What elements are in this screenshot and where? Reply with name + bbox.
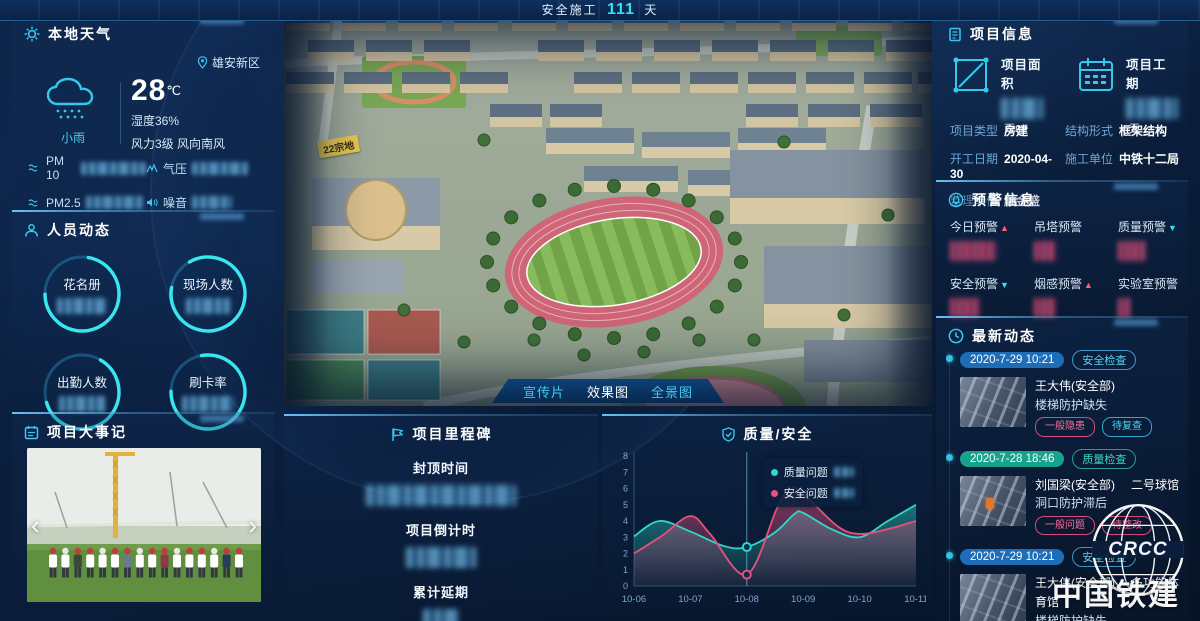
- entry-time-badge: 2020-7-29 10:21: [960, 352, 1064, 368]
- group-photo: [27, 448, 261, 602]
- blurred-value: [1126, 98, 1178, 119]
- blurred-value: [1001, 98, 1043, 119]
- svg-text:10-10: 10-10: [847, 594, 871, 605]
- pressure-icon: [146, 163, 158, 173]
- entry-type-tag: 安全检查: [1072, 350, 1136, 370]
- entry-issue: 楼梯防护缺失: [1035, 612, 1184, 621]
- svg-text:0: 0: [623, 581, 628, 591]
- pm-waves-icon: [28, 163, 41, 173]
- project-info-title: 项目信息: [970, 24, 1034, 44]
- entry-time-badge: 2020-7-29 10:21: [960, 549, 1064, 565]
- dashboard: 22宗地 宣传片 效果图 全景图 安全施工 111 天 本地天气: [0, 0, 1200, 621]
- site-render: [284, 10, 932, 406]
- svg-text:4: 4: [623, 516, 628, 526]
- events-panel: 项目大事记 ‹ ›: [12, 412, 274, 613]
- svg-text:7: 7: [623, 467, 628, 477]
- weather-current: 小雨 28℃ 湿度36% 风力3级 风向南风: [30, 76, 225, 152]
- entry-person: 刘国梁(安全部): [1035, 478, 1115, 492]
- temperature: 28℃: [131, 76, 225, 106]
- calendar-icon: [1075, 54, 1117, 96]
- site-3d-view[interactable]: 22宗地 宣传片 效果图 全景图: [284, 10, 932, 406]
- document-icon: [948, 27, 962, 42]
- feed-entry[interactable]: 2020-7-29 10:21 安全检查 王大伟(安全部)多功能体育馆 楼梯防护…: [946, 547, 1184, 621]
- svg-text:5: 5: [623, 500, 628, 510]
- project-info-panel: 项目信息 项目面积 万m² 项目工期 天 项目类型房建 结构形式框架结构 开工日: [936, 14, 1188, 176]
- hazard-level-tag: 一般问题: [1035, 516, 1095, 536]
- weather-panel-title: 本地天气: [48, 24, 112, 44]
- feed-list: 2020-7-29 10:21 安全检查 王大伟(安全部) 楼梯防护缺失 一般隐…: [946, 350, 1184, 621]
- timeline-dot: [946, 355, 953, 362]
- warnings-panel-title: 预警信息: [972, 190, 1036, 210]
- wind: 风力3级 风向南风: [131, 135, 225, 152]
- area-blueprint-icon: [950, 54, 992, 96]
- blurred-value: [950, 298, 980, 318]
- svg-text:10-11: 10-11: [904, 594, 926, 605]
- quality-safety-chart[interactable]: 01234567810-0610-0710-0810-0910-1010-11 …: [608, 442, 926, 613]
- warning-safety: 安全预警▼: [950, 275, 1034, 318]
- tab-render-image[interactable]: 效果图: [587, 382, 629, 401]
- noise-metric: 噪音: [146, 194, 264, 211]
- personnel-panel-title: 人员动态: [47, 220, 111, 240]
- person-icon: [24, 223, 39, 238]
- chart-tooltip: 质量问题 安全问题: [763, 458, 862, 507]
- divider: [120, 82, 121, 144]
- field-start-date: 开工日期2020-04-30: [950, 150, 1065, 181]
- blurred-value: [1118, 241, 1146, 261]
- blurred-value: [834, 488, 854, 498]
- noise-speaker-icon: [146, 197, 158, 208]
- hazard-level-tag: 一般隐患: [1035, 417, 1095, 437]
- weather-condition: 小雨: [30, 129, 116, 146]
- status-tag: 待复查: [1102, 417, 1152, 437]
- shield-check-icon: [721, 427, 736, 442]
- events-photo-carousel[interactable]: ‹ ›: [27, 448, 261, 602]
- blurred-value: [59, 396, 105, 412]
- warning-smoke: 烟感预警▲: [1034, 275, 1118, 318]
- field-project-type: 项目类型房建: [950, 122, 1065, 139]
- blurred-value: [192, 162, 248, 175]
- pm10-metric: PM 10: [28, 154, 146, 182]
- svg-text:10-07: 10-07: [678, 594, 702, 605]
- feed-panel: 最新动态 2020-7-29 10:21 安全检查 王大伟(安全部) 楼梯防护缺…: [936, 316, 1188, 621]
- warning-lab: 实验室预警: [1118, 275, 1188, 318]
- blurred-value: [423, 609, 459, 621]
- blurred-value: [1034, 298, 1056, 318]
- quality-safety-panel: 质量/安全 01234567810-0610-0710-0810-0910-10…: [602, 414, 932, 613]
- blurred-value: [834, 467, 854, 477]
- entry-type-tag: 质量检查: [1072, 449, 1136, 469]
- warning-crane: 吊塔预警: [1034, 218, 1118, 261]
- sun-gear-icon: [24, 26, 40, 42]
- feed-entry[interactable]: 2020-7-29 10:21 安全检查 王大伟(安全部) 楼梯防护缺失 一般隐…: [946, 350, 1184, 437]
- field-structure-type: 结构形式框架结构: [1065, 122, 1180, 139]
- pressure-metric: 气压: [146, 154, 264, 182]
- entry-person: 王大伟(安全部): [1035, 576, 1115, 590]
- entry-issue: 洞口防护滞后: [1035, 494, 1179, 513]
- trend-down-icon: ▼: [1168, 223, 1177, 233]
- timeline-dot: [946, 552, 953, 559]
- events-panel-title: 项目大事记: [47, 422, 127, 442]
- feed-entry[interactable]: 2020-7-28 18:46 质量检查 刘国梁(安全部)二号球馆 洞口防护滞后…: [946, 449, 1184, 536]
- milestones-panel: 项目里程碑 封顶时间 项目倒计时 累计延期: [284, 414, 598, 613]
- trend-up-icon: ▲: [1084, 280, 1093, 290]
- view-mode-tabs: 宣传片 效果图 全景图: [492, 379, 724, 403]
- weather-panel: 本地天气 雄安新区 小雨 28℃ 湿度3: [12, 14, 274, 204]
- quality-series-dot: [771, 469, 778, 476]
- clock-icon: [948, 328, 964, 344]
- blurred-value: [366, 485, 516, 506]
- tooltip-quality-row: 质量问题: [771, 464, 854, 480]
- milestone-topping-time: 封顶时间: [284, 458, 598, 506]
- alarm-bell-icon: [948, 192, 964, 208]
- carousel-prev-arrow[interactable]: ‹: [31, 515, 40, 535]
- timeline-dot: [946, 454, 953, 461]
- entry-photo-thumbnail[interactable]: [960, 476, 1026, 526]
- trend-down-icon: ▼: [1000, 280, 1009, 290]
- carousel-next-arrow[interactable]: ›: [248, 515, 257, 535]
- safety-series-dot: [771, 490, 778, 497]
- flag-icon: [390, 427, 405, 442]
- svg-text:10-06: 10-06: [622, 594, 646, 605]
- calendar-photo-icon: [24, 425, 39, 440]
- chart-title: 质量/安全: [744, 424, 814, 444]
- personnel-stats: 花名册 现场人数 出勤人数 刷卡率: [38, 250, 256, 436]
- entry-photo-thumbnail[interactable]: [960, 574, 1026, 621]
- milestone-delay: 累计延期: [284, 582, 598, 621]
- top-header-bar: 安全施工 111 天: [0, 0, 1200, 21]
- svg-text:1: 1: [623, 565, 628, 575]
- weather-location[interactable]: 雄安新区: [197, 54, 260, 71]
- blurred-value: [81, 162, 146, 175]
- blurred-value: [86, 196, 144, 209]
- warnings-panel: 预警信息 今日预警▲ 吊塔预警 质量预警▼ 安全预警▼ 烟感预警▲ 实验室预警: [936, 180, 1188, 312]
- field-contractor: 施工单位中铁十二局: [1065, 150, 1180, 181]
- svg-text:10-09: 10-09: [791, 594, 815, 605]
- safe-days-value: 111: [607, 1, 635, 18]
- status-tag: 待整改: [1102, 516, 1152, 536]
- milestones-panel-title: 项目里程碑: [413, 424, 493, 444]
- entry-issue: 楼梯防护缺失: [1035, 396, 1152, 415]
- entry-person: 王大伟(安全部): [1035, 379, 1115, 393]
- feed-panel-title: 最新动态: [972, 326, 1036, 346]
- trend-up-icon: ▲: [1000, 223, 1009, 233]
- warning-today: 今日预警▲: [950, 218, 1034, 261]
- entry-type-tag: 安全检查: [1072, 547, 1136, 567]
- personnel-panel: 人员动态 花名册 现场人数 出勤人数 刷卡率: [12, 210, 274, 402]
- warnings-grid: 今日预警▲ 吊塔预警 质量预警▼ 安全预警▼ 烟感预警▲ 实验室预警: [950, 218, 1180, 318]
- blurred-value: [182, 396, 234, 412]
- stat-roster: 花名册: [38, 250, 126, 338]
- safe-construction-counter: 安全施工 111 天: [542, 1, 659, 19]
- warning-quality: 质量预警▼: [1118, 218, 1188, 261]
- tab-panorama[interactable]: 全景图: [651, 382, 693, 401]
- tooltip-safety-row: 安全问题: [771, 485, 854, 501]
- blurred-value: [186, 298, 230, 314]
- blurred-value: [57, 298, 107, 314]
- blurred-value: [950, 241, 996, 261]
- blurred-value: [192, 196, 232, 209]
- blurred-value: [406, 547, 476, 568]
- pm-waves-icon: [28, 198, 41, 208]
- svg-text:8: 8: [623, 451, 628, 461]
- svg-text:10-08: 10-08: [735, 594, 759, 605]
- stat-onsite-count: 现场人数: [164, 250, 252, 338]
- svg-text:2: 2: [623, 549, 628, 559]
- blurred-value: [1034, 241, 1056, 261]
- svg-text:3: 3: [623, 532, 628, 542]
- entry-time-badge: 2020-7-28 18:46: [960, 451, 1064, 467]
- svg-text:6: 6: [623, 484, 628, 494]
- air-metrics: PM 10 气压 PM2.5 噪音: [28, 154, 264, 211]
- entry-place: 二号球馆: [1131, 478, 1179, 492]
- entry-photo-thumbnail[interactable]: [960, 377, 1026, 427]
- location-pin-icon: [197, 56, 208, 69]
- blurred-value: [1118, 298, 1131, 318]
- milestone-countdown: 项目倒计时: [284, 520, 598, 568]
- rain-cloud-icon: [44, 76, 102, 122]
- tab-promo-video[interactable]: 宣传片: [523, 382, 565, 401]
- pm25-metric: PM2.5: [28, 194, 146, 211]
- humidity: 湿度36%: [131, 112, 225, 129]
